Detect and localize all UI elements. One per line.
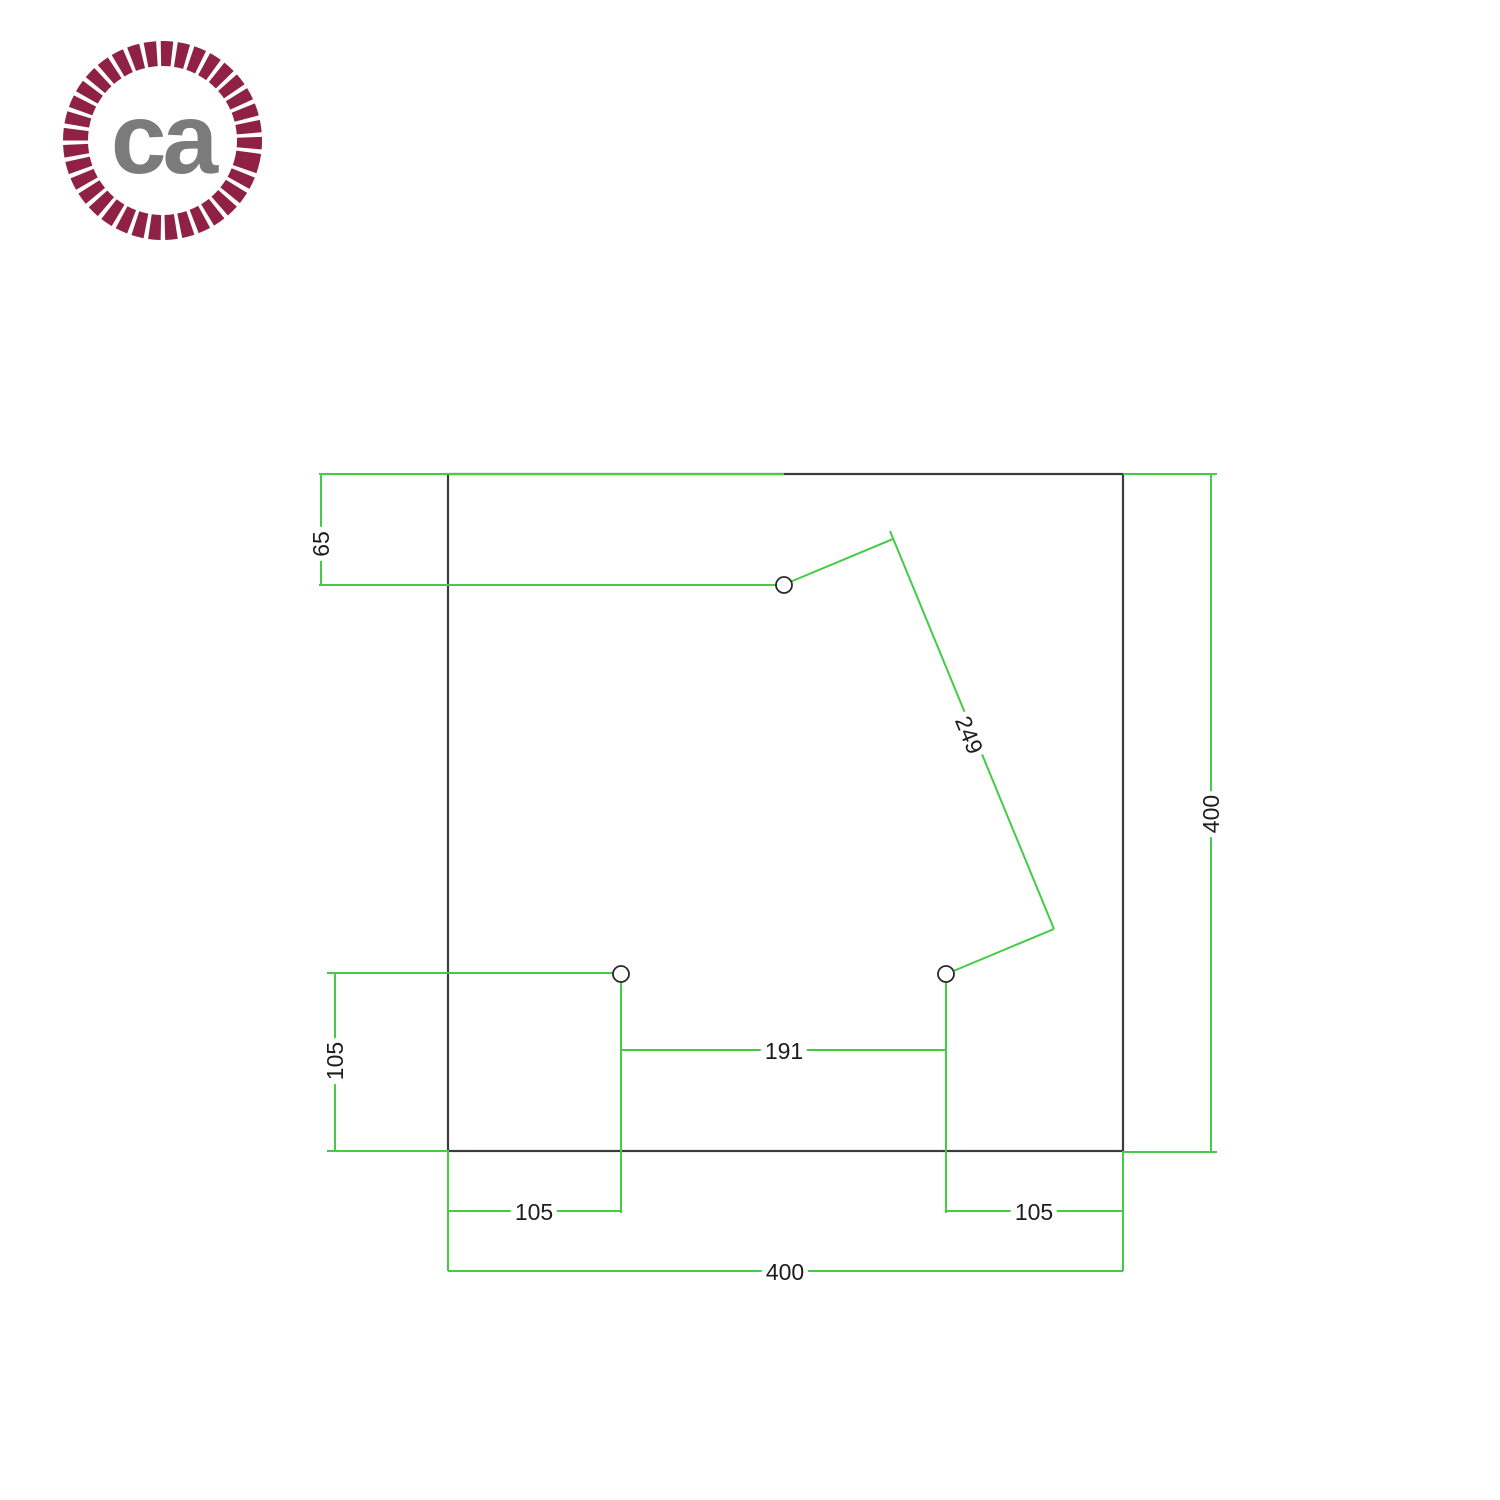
dim-label-105-bottom-right: 105	[1011, 1199, 1057, 1225]
dim-label-105-left: 105	[322, 1038, 348, 1084]
hole-top	[776, 577, 792, 593]
hole-bottom-right	[938, 966, 954, 982]
dim-249-connector-bottom	[951, 929, 1054, 972]
mounting-holes	[613, 577, 954, 982]
dim-label-105-bottom-left: 105	[511, 1199, 557, 1225]
dim-label-191: 191	[761, 1038, 807, 1064]
dim-label-400-bottom: 400	[762, 1259, 808, 1285]
dim-label-400-right: 400	[1198, 791, 1224, 837]
dim-249-connector-top	[790, 539, 893, 582]
hole-bottom-left	[613, 966, 629, 982]
dimension-drawing	[0, 0, 1500, 1500]
dim-label-65: 65	[308, 527, 334, 561]
drawing-canvas: ca	[0, 0, 1500, 1500]
